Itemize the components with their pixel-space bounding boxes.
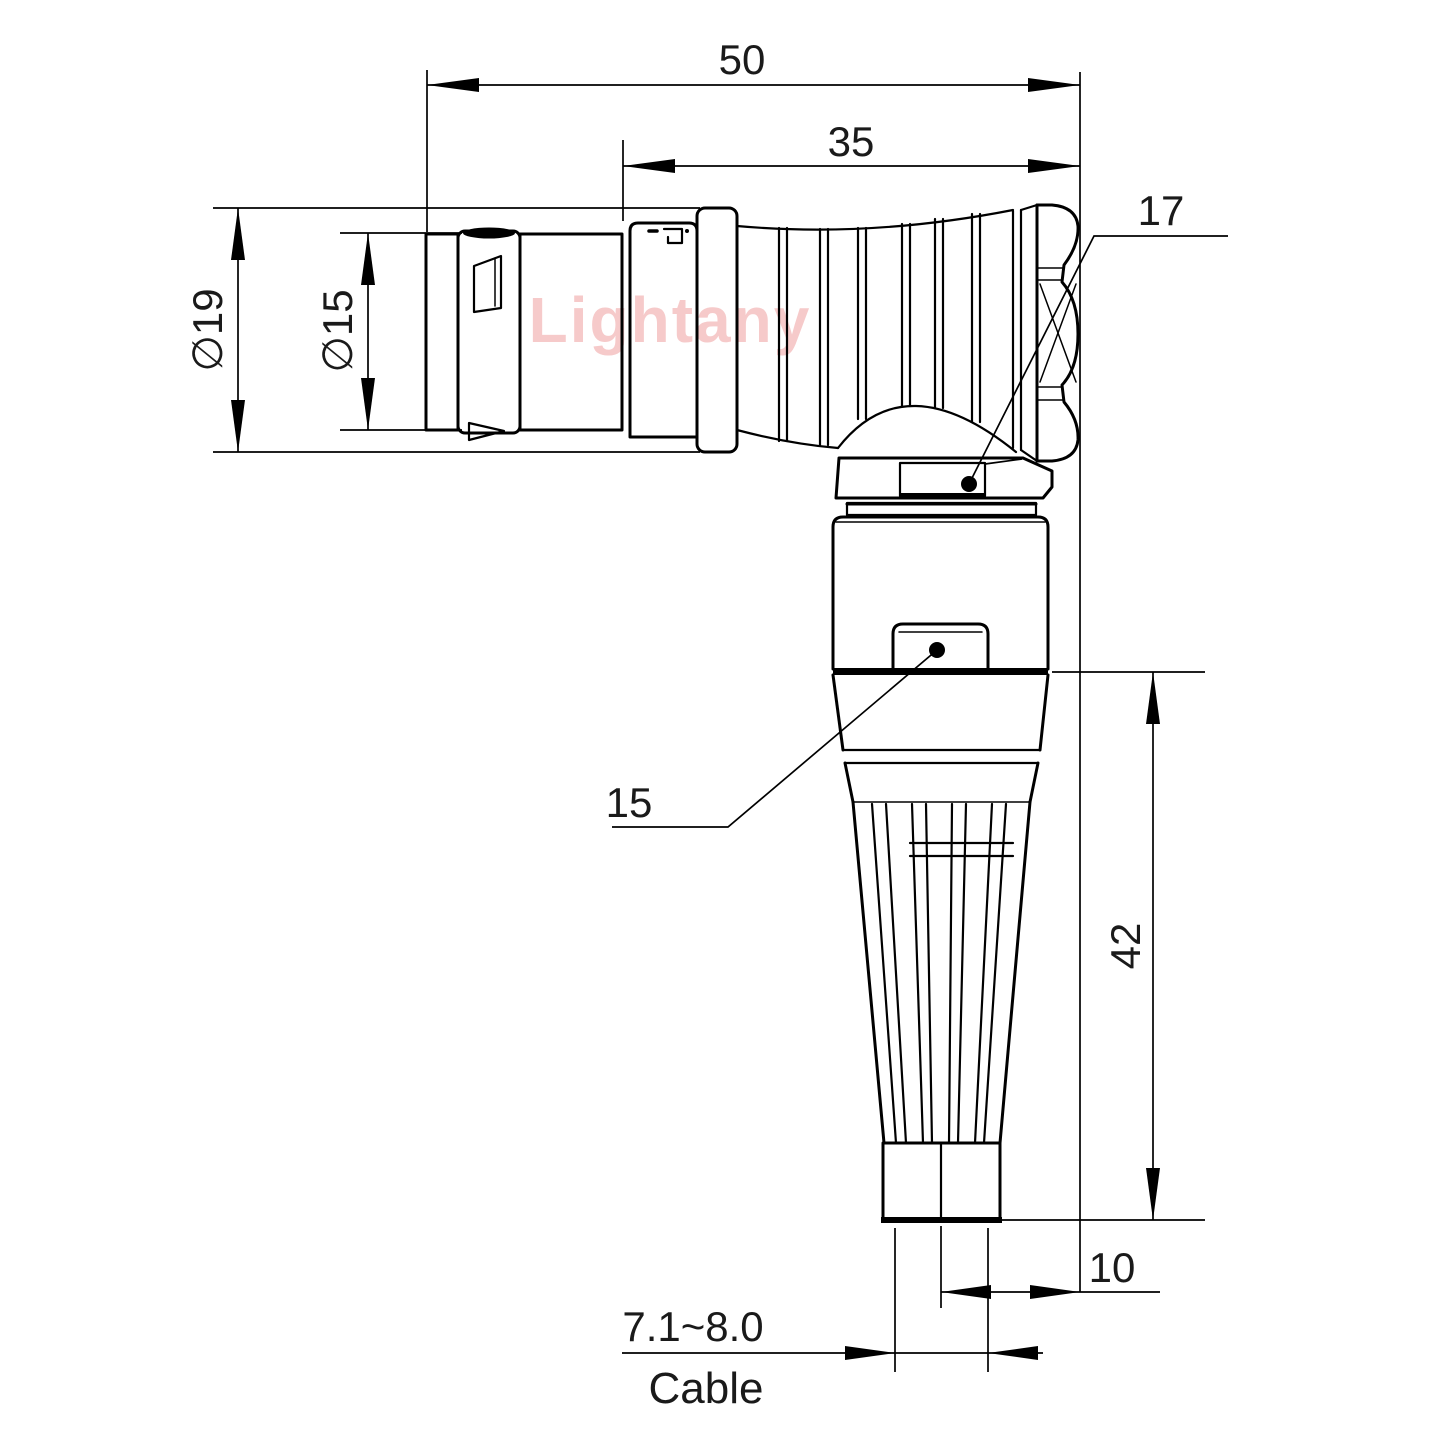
neck-top-slant — [1021, 205, 1037, 210]
leader-15: 15 — [606, 650, 937, 827]
cable-label: Cable — [649, 1364, 764, 1413]
collar-window-edge — [985, 459, 1022, 464]
dim-10-label: 10 — [1089, 1244, 1136, 1291]
cone-left — [845, 763, 853, 802]
front-ring — [426, 234, 458, 430]
boot-right-edge — [1000, 802, 1030, 1143]
dimension-10: 10 — [941, 1244, 1160, 1299]
boot-flutes — [872, 804, 1006, 1143]
dim-35-label: 35 — [828, 118, 875, 165]
connector-drawing-svg: Lightany — [0, 0, 1440, 1440]
technical-drawing-page: Lightany — [0, 0, 1440, 1440]
dimension-dia15: ∅15 — [314, 233, 375, 430]
elbow-vertical-section — [833, 458, 1052, 675]
dimension-42: 42 — [1102, 672, 1160, 1220]
boot-left-edge — [853, 802, 884, 1143]
engraving-mark — [664, 229, 682, 243]
leader-17: 17 — [969, 187, 1228, 484]
dim-dia19-label: ∅19 — [184, 288, 231, 371]
strain-relief-section — [833, 675, 1048, 1223]
dimension-dia19: ∅19 — [184, 208, 245, 452]
taper-right — [1040, 675, 1048, 750]
dimension-50: 50 — [427, 36, 1080, 92]
engraving-dot — [685, 229, 689, 233]
dimension-cable: 7.1~8.0 Cable — [622, 1303, 1043, 1413]
taper-left — [833, 675, 843, 750]
dim-dia15-label: ∅15 — [314, 289, 361, 372]
cable-sleeve-bottom — [881, 1217, 1002, 1223]
key-window — [474, 256, 501, 312]
dim-cable-range-label: 7.1~8.0 — [622, 1303, 763, 1350]
dim-42-label: 42 — [1102, 923, 1149, 970]
leader-17-label: 17 — [1138, 187, 1185, 234]
dimension-35: 35 — [623, 118, 1080, 173]
watermark-text: Lightany — [529, 284, 812, 356]
hex-nut-section — [1037, 205, 1078, 461]
cone-right — [1030, 763, 1038, 802]
extension-lines — [213, 70, 1205, 1372]
leader-15-label: 15 — [606, 779, 653, 826]
barrel-seam — [833, 668, 1048, 675]
dim-50-label: 50 — [719, 36, 766, 83]
latch-lug — [463, 228, 515, 239]
